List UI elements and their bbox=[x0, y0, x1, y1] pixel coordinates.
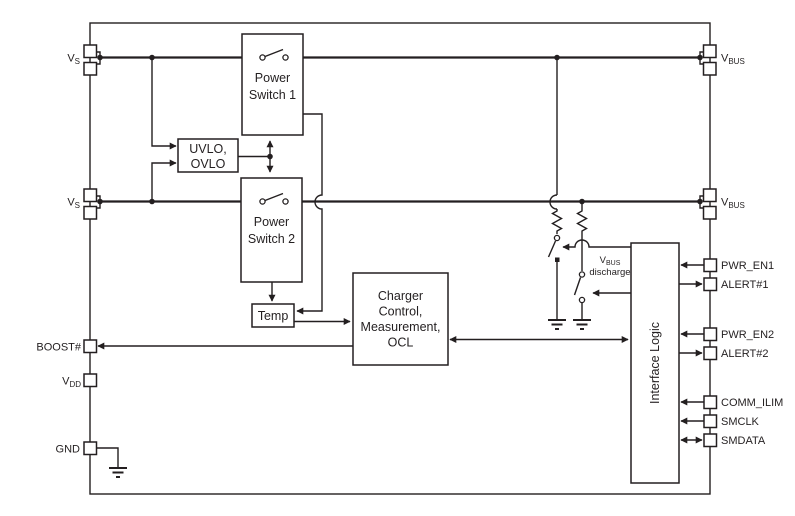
boost-label: BOOST# bbox=[36, 342, 82, 354]
block-power-switch-1: Power Switch 1 bbox=[242, 34, 303, 135]
vbus1-label: VBUS bbox=[721, 53, 745, 67]
uvlo-label-line2: OVLO bbox=[191, 157, 226, 171]
switch-terminal bbox=[555, 258, 560, 263]
charger-label-line2: Control, bbox=[379, 305, 423, 319]
block-power-switch-2: Power Switch 2 bbox=[241, 178, 302, 282]
alert1-label: ALERT#1 bbox=[721, 279, 769, 291]
interface-logic-label: Interface Logic bbox=[648, 322, 662, 404]
comm-ilim-label: COMM_ILIM bbox=[721, 397, 783, 409]
charger-label-line3: Measurement, bbox=[361, 320, 441, 334]
power-switch-1-label-line2: Switch 1 bbox=[249, 88, 296, 102]
vbus-discharge-label-line2: discharge bbox=[589, 267, 630, 278]
alert2-label: ALERT#2 bbox=[721, 348, 769, 360]
pin-alert1: ALERT#1 bbox=[704, 278, 769, 291]
vs2-label: VS bbox=[67, 197, 80, 211]
uvlo-label-line1: UVLO, bbox=[189, 142, 227, 156]
gnd-label: GND bbox=[56, 444, 81, 456]
ic-boundary bbox=[90, 23, 710, 494]
pin-smclk: SMCLK bbox=[704, 415, 760, 428]
vs1-label: VS bbox=[67, 53, 80, 67]
vbus2-label: VBUS bbox=[721, 197, 745, 211]
pin-boost: BOOST# bbox=[36, 340, 96, 354]
power-switch-2-label-line2: Switch 2 bbox=[248, 232, 295, 246]
charger-label-line1: Charger bbox=[378, 289, 423, 303]
charger-label-line4: OCL bbox=[388, 336, 414, 350]
pwr-en2-label: PWR_EN2 bbox=[721, 329, 774, 341]
smclk-label: SMCLK bbox=[721, 416, 760, 428]
pwr-en1-label: PWR_EN1 bbox=[721, 260, 774, 272]
block-interface-logic: Interface Logic bbox=[631, 243, 679, 483]
pin-alert2: ALERT#2 bbox=[704, 347, 769, 360]
pin-gnd: GND bbox=[56, 442, 97, 456]
pin-vdd: VDD bbox=[62, 374, 96, 389]
diagram-canvas: Power Switch 1 Power Switch 2 UVLO, OVLO… bbox=[0, 0, 795, 516]
block-diagram: Power Switch 1 Power Switch 2 UVLO, OVLO… bbox=[0, 0, 795, 516]
vdd-label: VDD bbox=[62, 376, 81, 390]
pin-pwr-en2: PWR_EN2 bbox=[704, 328, 774, 341]
power-switch-2-label-line1: Power bbox=[254, 215, 289, 229]
switch-contact bbox=[579, 272, 584, 277]
block-charger-control: Charger Control, Measurement, OCL bbox=[353, 273, 448, 365]
pin-smdata: SMDATA bbox=[704, 434, 766, 447]
power-switch-1-label-line1: Power bbox=[255, 71, 290, 85]
temp-label: Temp bbox=[258, 309, 289, 323]
smdata-label: SMDATA bbox=[721, 435, 766, 447]
switch-contact bbox=[554, 235, 559, 240]
block-temp: Temp bbox=[252, 304, 294, 327]
pin-comm-ilim: COMM_ILIM bbox=[704, 396, 783, 409]
switch-contact bbox=[579, 297, 584, 302]
pin-pwr-en1: PWR_EN1 bbox=[704, 259, 774, 272]
block-uvlo-ovlo: UVLO, OVLO bbox=[178, 139, 238, 172]
